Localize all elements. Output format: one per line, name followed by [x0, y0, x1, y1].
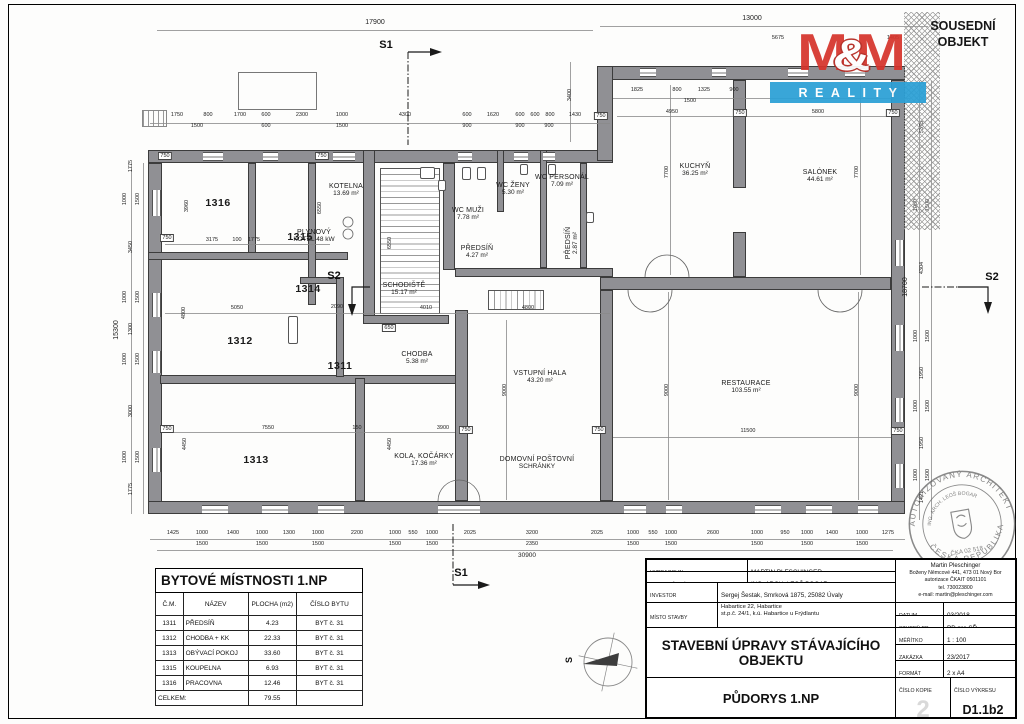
dimension-line [570, 62, 571, 142]
wall [363, 150, 375, 324]
room-area: 17.36 m² [394, 460, 453, 467]
table-cell: BYT č. 31 [296, 676, 362, 691]
room-label: KOLA, KOČÁRKY17.36 m² [394, 453, 453, 467]
room-area: 5.38 m² [401, 358, 432, 365]
table-cell: 1312 [156, 631, 184, 646]
window [262, 505, 288, 514]
dimension-line [617, 116, 891, 117]
window [333, 152, 355, 161]
dim-label: 5800 [812, 109, 824, 115]
meritko-value: 1 : 100 [947, 637, 966, 644]
dim-label: 1500 [751, 541, 763, 547]
room-name: 1313 [243, 454, 268, 466]
room-name: SALÓNEK [803, 169, 837, 176]
dim-label: 550 [408, 530, 417, 536]
room-name: PŘEDSÍŇ [565, 227, 572, 260]
section-marker-s2-left: S2 [327, 270, 340, 282]
dim-label: 1950 [919, 367, 925, 379]
dim-label: 600 [261, 123, 270, 129]
contact-name: Martin Pleschinger [899, 563, 1012, 570]
table-cell: 1315 [156, 661, 184, 676]
window [543, 152, 555, 161]
dim-label: 1775 [128, 160, 134, 172]
dim-label: 7550 [262, 425, 274, 431]
table-cell: PRACOVNA [183, 676, 248, 691]
wall [540, 150, 547, 268]
dim-label: 3200 [526, 530, 538, 536]
dim-label: 550 [648, 530, 657, 536]
room-name: KOLA, KOČÁRKY [394, 453, 453, 460]
col-header-cm: Č.M. [156, 593, 184, 616]
table-cell: 1313 [156, 646, 184, 661]
dim-label: 7700 [854, 166, 860, 178]
room-name: RESTAURACE [721, 380, 770, 387]
room-area: KOTEL 48 kW [293, 236, 334, 243]
format-value: 2 x A4 [947, 670, 965, 677]
room-name: 1314 [295, 283, 320, 295]
window [152, 190, 161, 216]
dim-label: 750 [158, 152, 172, 160]
table-cell: PŘEDSÍŇ [183, 616, 248, 631]
room-name: DOMOVNÍ POŠTOVNÍ [500, 456, 575, 463]
window [624, 505, 646, 514]
dim-label: 600 [530, 112, 539, 118]
room-area: 2.87 m² [572, 227, 579, 260]
dimension-line [613, 437, 891, 438]
dim-label: 750 [315, 152, 329, 160]
wall [455, 268, 613, 277]
contact-phone: tel. 730023800 [899, 585, 1012, 592]
room-name: VSTUPNÍ HALA [514, 370, 567, 377]
dim-label: 750 [891, 427, 905, 435]
dim-label: 4300 [399, 112, 411, 118]
dim-label: 1300 [283, 530, 295, 536]
dim-label: 1000 [312, 530, 324, 536]
dim-label: 1500 [336, 123, 348, 129]
table-cell: 6.93 [248, 661, 296, 676]
room-label: WC ŽENY5.30 m² [496, 182, 530, 196]
room-label: SALÓNEK44.61 m² [803, 169, 837, 183]
dim-label: 1500 [135, 193, 141, 205]
dim-label: 6550 [317, 202, 323, 214]
apartment-rooms-table: BYTOVÉ MÍSTNOSTI 1.NP Č.M. NÁZEV PLOCHA … [155, 568, 363, 706]
dim-label: 1000 [913, 330, 919, 342]
dim-label: 3000 [128, 405, 134, 417]
table-cell: 22.33 [248, 631, 296, 646]
dimension-line [143, 163, 144, 514]
dim-label: 3900 [437, 425, 449, 431]
dim-label: 1500 [191, 123, 203, 129]
window [438, 505, 480, 514]
dim-label: 1000 [196, 530, 208, 536]
dim-label: 13000 [742, 16, 761, 22]
dim-label: 1000 [913, 400, 919, 412]
table-cell: CHODBA + KK [183, 631, 248, 646]
room-name: WC ŽENY [496, 182, 530, 189]
mm-logo-letters: M&M [756, 28, 940, 81]
room-label: PLYNOVÝKOTEL 48 kW [293, 229, 334, 243]
room-label: PŘEDSÍŇ4.27 m² [461, 245, 494, 259]
room-name: 1316 [205, 197, 230, 209]
dim-label: 1500 [925, 330, 931, 342]
stair-landing [488, 290, 544, 310]
window [806, 505, 832, 514]
dim-label: 1500 [856, 541, 868, 547]
canopy-outline [238, 72, 317, 110]
window [152, 448, 161, 472]
dimension-line [160, 432, 455, 433]
dim-label: 1775 [128, 483, 134, 495]
dim-label: 1500 [627, 541, 639, 547]
table-cell: BYT č. 31 [296, 631, 362, 646]
total-label: CELKEM: [156, 691, 249, 706]
room-area: 36.25 m² [680, 170, 711, 177]
window [202, 505, 228, 514]
dim-label: 1000 [389, 530, 401, 536]
room-area: 43.20 m² [514, 377, 567, 384]
dim-label: 4450 [387, 438, 393, 450]
drawing-title: PŮDORYS 1.NP [647, 677, 895, 718]
dim-label: 2025 [591, 530, 603, 536]
room-label: 1316 [205, 197, 230, 209]
dim-label: 1700 [234, 112, 246, 118]
dim-label: 1500 [135, 353, 141, 365]
investor-value: Sergej Šestak, Smrková 1875, 25082 Úvaly [721, 592, 843, 599]
rooms-table-row: 1315KOUPELNA6.93BYT č. 31 [156, 661, 363, 676]
vykres-label: ČÍSLO VÝKRESU [954, 688, 996, 694]
dim-label: 150 [352, 425, 361, 431]
dim-label: 1000 [665, 530, 677, 536]
table-cell: 1311 [156, 616, 184, 631]
dim-label: 1500 [312, 541, 324, 547]
dim-label: 1620 [487, 112, 499, 118]
exterior-stair [142, 110, 167, 127]
room-area: 13.69 m² [329, 190, 363, 197]
room-area: 7.09 m² [535, 181, 589, 188]
dim-label: 2090 [331, 304, 343, 310]
rooms-table-row: 1312CHODBA + KK22.33BYT č. 31 [156, 631, 363, 646]
fixture [586, 212, 594, 223]
dim-label: 950 [780, 530, 789, 536]
wall [733, 80, 746, 188]
room-name: WC MUŽI [452, 207, 484, 214]
dim-label: 1275 [882, 530, 894, 536]
dim-label: 1500 [256, 541, 268, 547]
dim-label: 5050 [231, 305, 243, 311]
room-area: 7.78 m² [452, 214, 484, 221]
drawing-number: D1.1b2 [954, 703, 1012, 717]
dim-label: 800 [545, 112, 554, 118]
table-cell: 4.23 [248, 616, 296, 631]
dim-label: 1430 [569, 112, 581, 118]
dim-label: 1000 [751, 530, 763, 536]
dim-label: 1425 [167, 530, 179, 536]
dimension-line [860, 85, 861, 275]
room-label: CHODBA5.38 m² [401, 351, 432, 365]
room-label: VSTUPNÍ HALA43.20 m² [514, 370, 567, 384]
logo-ampersand: & [833, 31, 863, 80]
room-name: KOTELNA [329, 183, 363, 190]
window [666, 505, 682, 514]
title-block: VYPRACOVAL MARTIN PLESCHINGER ZODPOVĚDNÝ… [645, 558, 1017, 719]
dim-label: 17900 [365, 20, 384, 26]
wall [455, 310, 468, 501]
room-label: WC PERSONÁL7.09 m² [535, 174, 589, 188]
wall [363, 315, 449, 324]
dim-label: 11500 [741, 428, 756, 434]
dim-label: 750 [160, 234, 174, 242]
rooms-table-total-row: CELKEM: 79.55 [156, 691, 363, 706]
dim-label: 3175 [206, 237, 218, 243]
room-label: RESTAURACE103.55 m² [721, 380, 770, 394]
dim-label: 1500 [801, 541, 813, 547]
dim-label: 4450 [182, 438, 188, 450]
mm-reality-logo: M&M REALITY [770, 28, 926, 103]
wall [355, 378, 365, 501]
room-name: 1311 [328, 360, 353, 372]
room-area: 44.61 m² [803, 176, 837, 183]
dimension-line [150, 123, 610, 124]
dim-label: 1500 [426, 541, 438, 547]
dim-label: 1000 [122, 193, 128, 205]
room-label: WC MUŽI7.78 m² [452, 207, 484, 221]
dim-label: 1325 [698, 87, 710, 93]
dim-label: 600 [462, 112, 471, 118]
col-header-plocha: PLOCHA (m2) [248, 593, 296, 616]
dim-label: 1000 [627, 530, 639, 536]
dim-label: 1300 [128, 323, 134, 335]
fixture [520, 164, 528, 175]
room-label: PŘEDSÍŇ2.87 m² [565, 227, 579, 260]
room-name: PŘEDSÍŇ [461, 245, 494, 252]
dim-label: 1500 [135, 451, 141, 463]
rooms-table-title: BYTOVÉ MÍSTNOSTI 1.NP [156, 569, 363, 593]
room-area: SCHRÁNKY [500, 463, 575, 470]
dim-label: 1825 [631, 87, 643, 93]
fixture [477, 167, 486, 180]
dim-label: 6550 [387, 237, 393, 249]
rooms-table-row: 1313OBÝVACÍ POKOJ33.60BYT č. 31 [156, 646, 363, 661]
dim-label: 2350 [526, 541, 538, 547]
table-cell: OBÝVACÍ POKOJ [183, 646, 248, 661]
logo-reality-bar: REALITY [770, 82, 926, 103]
window [514, 152, 528, 161]
dim-label: 750 [733, 109, 747, 117]
dim-label: 4800 [522, 305, 534, 311]
room-name: 1312 [227, 335, 252, 347]
room-name: KUCHYŇ [680, 163, 711, 170]
dim-label: 1500 [135, 291, 141, 303]
dim-label: 30900 [518, 553, 536, 559]
fixture [420, 167, 435, 179]
window [858, 505, 878, 514]
rooms-table-row: 1311PŘEDSÍŇ4.23BYT č. 31 [156, 616, 363, 631]
dimension-line [131, 163, 132, 514]
misto-line2: st.p.č. 24/1, k.ú. Habartice u Frýdlantu [721, 611, 892, 618]
dim-label: 1750 [171, 112, 183, 118]
dim-label: 750 [459, 426, 473, 434]
dim-label: 1500 [925, 400, 931, 412]
dim-label: 4800 [181, 307, 187, 319]
table-cell: 12.46 [248, 676, 296, 691]
dim-label: 900 [515, 123, 524, 129]
window [458, 152, 472, 161]
dim-label: 4010 [420, 305, 432, 311]
table-cell: BYT č. 31 [296, 646, 362, 661]
dim-label: 1000 [122, 353, 128, 365]
dim-label: 750 [886, 109, 900, 117]
dim-label: 9000 [664, 384, 670, 396]
room-label: 1311 [328, 360, 353, 372]
dim-label: 4304 [919, 262, 925, 274]
col-header-nazev: NÁZEV [183, 593, 248, 616]
section-marker-s1-top: S1 [379, 39, 392, 51]
dim-label: 3450 [128, 241, 134, 253]
window [318, 505, 344, 514]
table-cell: 1316 [156, 676, 184, 691]
dim-label: 1400 [227, 530, 239, 536]
dim-label: 750 [160, 425, 174, 433]
dim-label: 1000 [256, 530, 268, 536]
room-label: KUCHYŇ36.25 m² [680, 163, 711, 177]
dim-label: 100 [232, 237, 241, 243]
dim-label: 1000 [801, 530, 813, 536]
dimension-line [150, 539, 905, 540]
window [895, 240, 904, 266]
window [263, 152, 278, 161]
window [152, 351, 161, 373]
dim-label: 900 [544, 123, 553, 129]
dim-label: 1950 [919, 437, 925, 449]
total-value: 79.55 [248, 691, 296, 706]
dim-label: 1500 [665, 541, 677, 547]
dim-label: 1000 [122, 451, 128, 463]
dim-label: 600 [261, 112, 270, 118]
dim-label: 900 [729, 87, 738, 93]
room-area: 5.30 m² [496, 189, 530, 196]
dim-label: 7700 [664, 166, 670, 178]
wall [497, 150, 504, 212]
window [712, 68, 726, 77]
contact-email: e-mail: martin@pleschinger.com [899, 592, 1012, 599]
col-header-byt: ČÍSLO BYTU [296, 593, 362, 616]
dim-label: 650 [382, 324, 396, 332]
dim-label: 1500 [196, 541, 208, 547]
dim-label: 900 [462, 123, 471, 129]
section-marker-s2-right: S2 [985, 271, 998, 283]
dim-label: 750 [594, 112, 608, 120]
architect-contact: Martin Pleschinger Boženy Němcové 441, 4… [895, 560, 1015, 602]
dim-label: 2025 [464, 530, 476, 536]
project-title: STAVEBNÍ ÚPRAVY STÁVAJÍCÍHO OBJEKTU [647, 627, 895, 677]
dim-label: 600 [515, 112, 524, 118]
room-label: SCHODIŠTĚ15.17 m² [383, 282, 426, 296]
fixture [462, 167, 471, 180]
dimension-line [165, 244, 330, 245]
wall [160, 375, 468, 384]
window [755, 505, 781, 514]
room-label: KOTELNA13.69 m² [329, 183, 363, 197]
wall [891, 80, 905, 514]
dim-label: 1500 [684, 98, 696, 104]
dimension-line [506, 320, 507, 500]
dimension-line [157, 550, 893, 551]
dim-label: 800 [672, 87, 681, 93]
wall [600, 290, 613, 501]
window [152, 293, 161, 317]
room-name: CHODBA [401, 351, 432, 358]
window [895, 325, 904, 351]
dim-label: 1000 [122, 291, 128, 303]
dim-label: 3400 [567, 89, 573, 101]
wall [733, 232, 746, 277]
wall [600, 277, 891, 290]
misto-line1: Habartice 22, Habartice [721, 604, 892, 611]
dim-label: 1000 [426, 530, 438, 536]
window [895, 398, 904, 422]
fixture [438, 180, 446, 191]
window [640, 68, 656, 77]
dim-label: 1000 [856, 530, 868, 536]
north-letter: S [564, 657, 574, 663]
rooms-table-row: 1316PRACOVNA12.46BYT č. 31 [156, 676, 363, 691]
stamp-lion-emblem [951, 509, 974, 540]
dim-label: 2600 [707, 530, 719, 536]
dim-label: 1500 [389, 541, 401, 547]
dim-label: 1400 [826, 530, 838, 536]
dim-label: 3960 [184, 200, 190, 212]
dimension-line [157, 30, 593, 31]
room-area: 103.55 m² [721, 387, 770, 394]
room-label: 1312 [227, 335, 252, 347]
dim-label: 15300 [114, 320, 120, 339]
dim-label: 800 [203, 112, 212, 118]
wall [148, 252, 348, 260]
room-area: 15.17 m² [383, 289, 426, 296]
room-name: WC PERSONÁL [535, 174, 589, 181]
room-label: DOMOVNÍ POŠTOVNÍSCHRÁNKY [500, 456, 575, 470]
room-label: 1313 [243, 454, 268, 466]
investor-label: INVESTOR [650, 593, 676, 599]
dim-label: 18700 [903, 277, 909, 296]
dimension-line [165, 313, 610, 314]
table-cell: 33.60 [248, 646, 296, 661]
dim-label: 4950 [666, 109, 678, 115]
table-cell: KOUPELNA [183, 661, 248, 676]
section-marker-s1-bottom: S1 [454, 567, 467, 579]
total-empty-cell [296, 691, 362, 706]
misto-label: MÍSTO STAVBY [650, 615, 687, 621]
drawing-sheet: { "neighbor": {"line1": "SOUSEDNÍ", "lin… [0, 0, 1024, 724]
fixture [288, 316, 298, 344]
room-name: PLYNOVÝ [293, 229, 334, 236]
rooms-table-header-row: Č.M. NÁZEV PLOCHA (m2) ČÍSLO BYTU [156, 593, 363, 616]
dim-label: 1775 [248, 237, 260, 243]
dim-label: 1000 [336, 112, 348, 118]
room-label: 1314 [295, 283, 320, 295]
room-name: SCHODIŠTĚ [383, 282, 426, 289]
room-area: 4.27 m² [461, 252, 494, 259]
table-cell: BYT č. 31 [296, 616, 362, 631]
kopie-number: 2 [899, 697, 947, 718]
dim-label: 9000 [854, 384, 860, 396]
table-cell: BYT č. 31 [296, 661, 362, 676]
dim-label: 2300 [296, 112, 308, 118]
dim-label: 2200 [351, 530, 363, 536]
dim-label: 9000 [502, 384, 508, 396]
dim-label: 750 [592, 426, 606, 434]
contact-authorization: autorizace ČKAIT 0501101 [899, 577, 1012, 584]
